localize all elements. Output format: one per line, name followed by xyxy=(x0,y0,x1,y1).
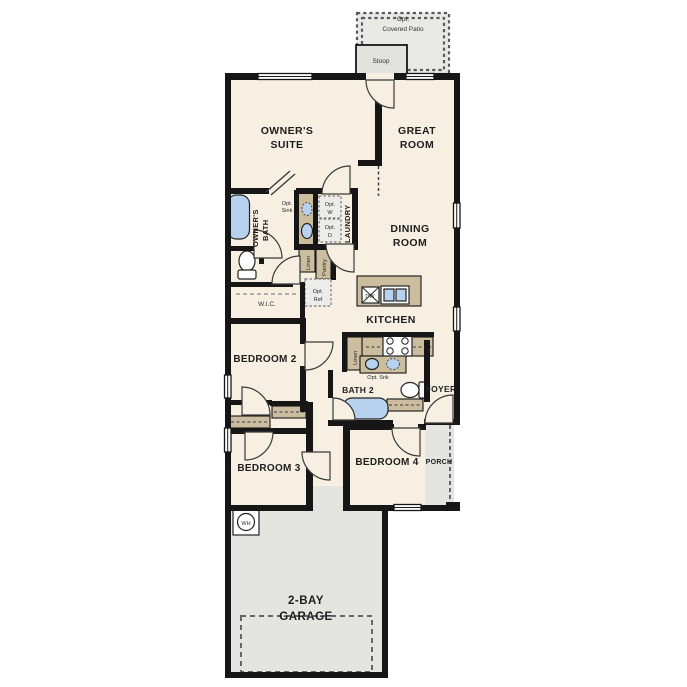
owners-suite-label: SUITE xyxy=(271,139,304,151)
dining-room-label: ROOM xyxy=(393,237,427,249)
linen-hall-label: Linen xyxy=(306,256,312,270)
wall-segment xyxy=(454,73,460,425)
opt-dryer-label: Opt. xyxy=(325,225,336,231)
island-sink-basin xyxy=(384,289,394,301)
window xyxy=(225,375,232,398)
optional-sink-icon xyxy=(387,359,400,370)
bedroom2-label: BEDROOM 2 xyxy=(233,354,296,365)
water-heater-label: WH xyxy=(241,521,250,527)
wall-segment xyxy=(382,511,388,678)
window xyxy=(258,74,312,80)
window xyxy=(394,505,421,511)
toilet-icon xyxy=(401,383,419,398)
owners-suite-label: OWNER'S xyxy=(261,125,314,137)
svg-text:Linen: Linen xyxy=(306,256,312,270)
opt-sink2-label: Opt. Snk xyxy=(367,375,389,381)
sink-icon xyxy=(366,359,379,370)
foyer-label: FOYER xyxy=(426,384,457,394)
floorplan-page: Opt. Covered Patio Stoop OWNER'S SUITE G… xyxy=(0,0,687,687)
wall-segment xyxy=(343,430,350,511)
window xyxy=(454,307,461,331)
wic-label: W.I.C. xyxy=(258,301,276,308)
opt-washer-label: W xyxy=(327,210,333,216)
window xyxy=(406,74,434,80)
pantry-label: Pantry xyxy=(322,259,328,276)
optional-sink-icon xyxy=(302,203,312,216)
wall-segment xyxy=(225,318,306,324)
linen-kitchen-label: Linen xyxy=(353,351,359,365)
window xyxy=(454,203,461,228)
bedroom4-label: BEDROOM 4 xyxy=(355,457,418,468)
island-sink-basin xyxy=(396,289,406,301)
wall-segment xyxy=(231,505,307,511)
opt-sink-label: Opt. xyxy=(282,201,293,207)
wall-segment xyxy=(225,188,269,194)
dishwasher-label: DW xyxy=(365,294,375,300)
opt-washer-label: Opt. xyxy=(325,202,336,208)
great-room-label: ROOM xyxy=(400,139,434,151)
kitchen-label: KITCHEN xyxy=(366,314,415,326)
garage-label: GARAGE xyxy=(279,611,332,623)
wall-segment xyxy=(342,332,347,372)
toilet-tank-icon xyxy=(238,270,256,279)
opt-dryer-label: D xyxy=(328,233,332,239)
hall-to-garage-floor xyxy=(313,486,343,511)
opt-sink-label: Sink xyxy=(282,208,293,214)
svg-text:Pantry: Pantry xyxy=(322,259,328,276)
bath2-label: BATH 2 xyxy=(342,385,374,395)
svg-text:LAUNDRY: LAUNDRY xyxy=(343,205,352,244)
bedroom3-label: BEDROOM 3 xyxy=(237,463,300,474)
garage-label: 2-BAY xyxy=(288,595,324,607)
wall-segment xyxy=(300,282,305,324)
wall-segment xyxy=(300,324,306,344)
sink-icon xyxy=(302,224,313,239)
window xyxy=(225,428,232,452)
wall-segment xyxy=(270,401,308,406)
laundry-label: LAUNDRY xyxy=(343,205,352,244)
wall-segment xyxy=(352,188,358,250)
patio-label: Opt. xyxy=(397,16,409,23)
dining-room-label: DINING xyxy=(390,223,429,235)
svg-text:OWNER'S: OWNER'S xyxy=(251,209,260,247)
wall-segment xyxy=(294,190,299,248)
stoop-label: Stoop xyxy=(373,58,390,65)
great-room-label: GREAT xyxy=(398,125,436,137)
svg-text:Linen: Linen xyxy=(353,351,359,365)
wall-segment xyxy=(225,672,388,678)
opt-fridge-label: Ref xyxy=(314,297,323,303)
porch-label: PORCH xyxy=(426,459,453,466)
wall-segment xyxy=(342,332,434,337)
wall-segment xyxy=(328,420,393,426)
wall-segment xyxy=(313,190,318,246)
wall-segment xyxy=(358,160,382,166)
toilet-icon xyxy=(239,251,255,271)
patio-label: Covered Patio xyxy=(382,26,424,33)
wall-segment xyxy=(328,370,333,398)
wall-segment xyxy=(446,502,460,511)
floorplan-drawing: Opt. Covered Patio Stoop OWNER'S SUITE G… xyxy=(0,0,687,687)
opt-fridge-label: Opt. xyxy=(313,289,324,295)
svg-text:BATH: BATH xyxy=(261,220,270,241)
